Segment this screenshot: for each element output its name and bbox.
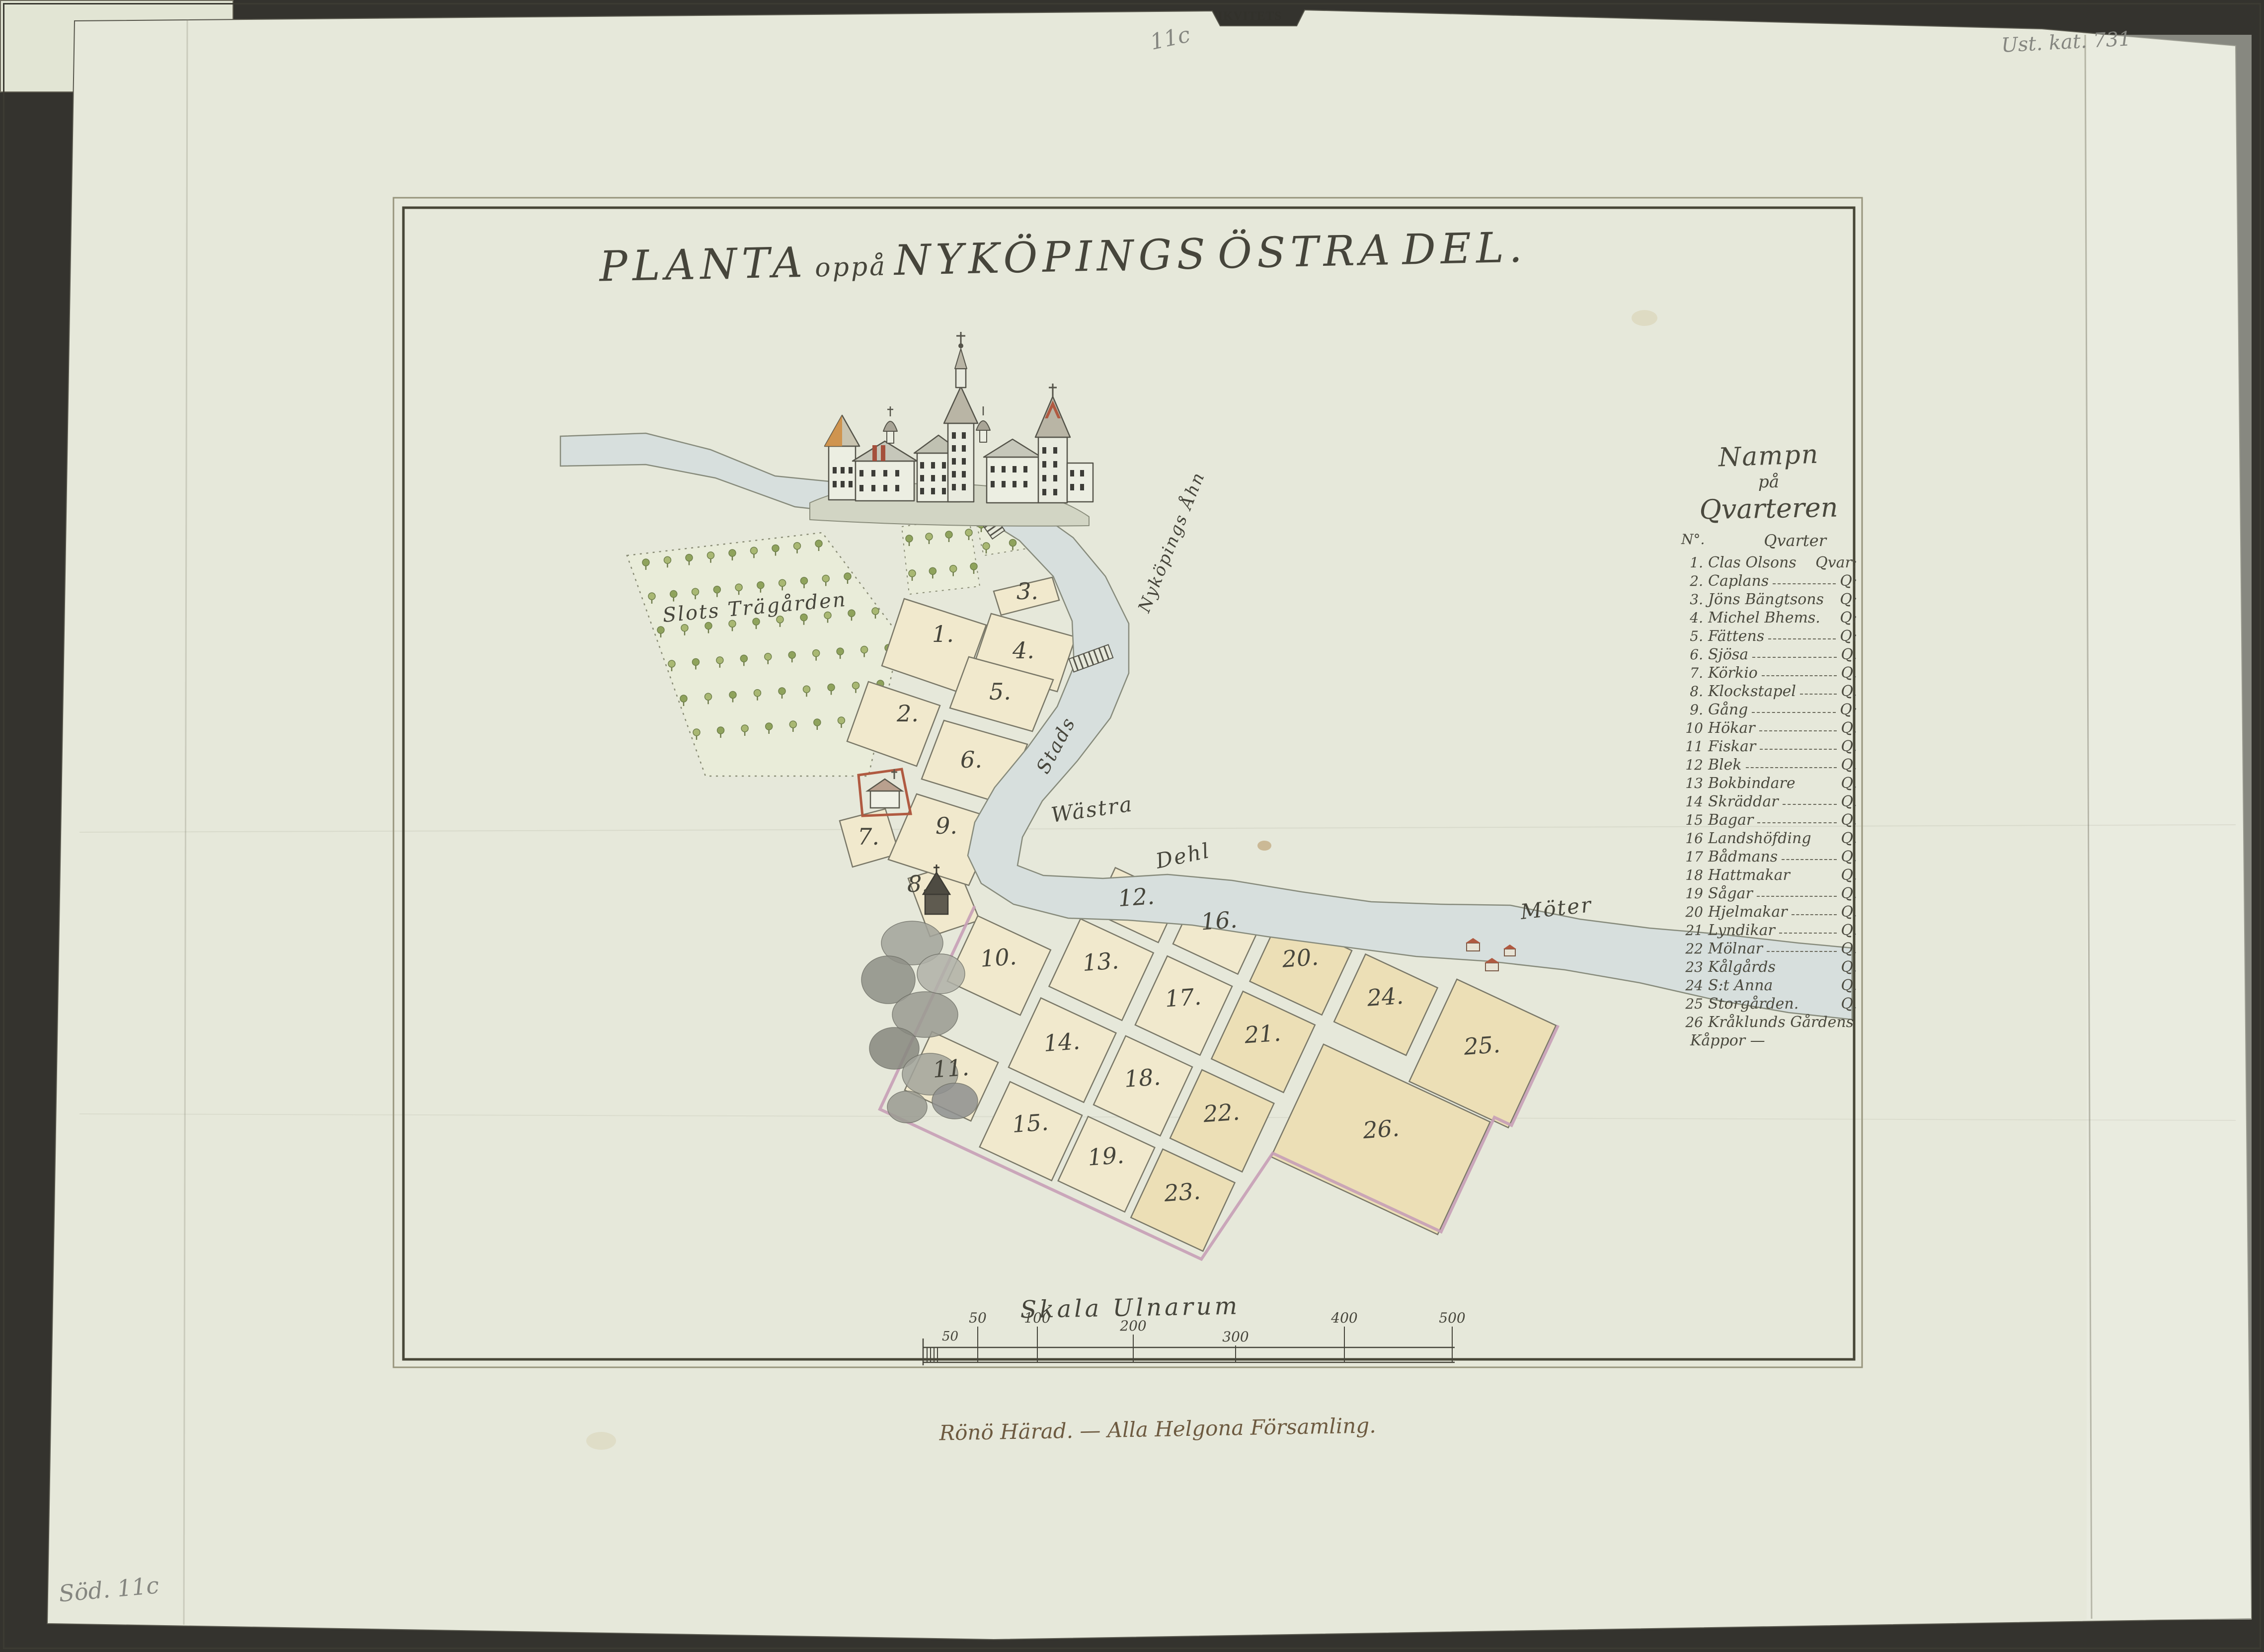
castle-window	[1070, 484, 1074, 490]
castle-window	[931, 462, 935, 469]
tree-crown	[765, 653, 772, 660]
legend-row-number: 14	[1680, 794, 1703, 809]
legend-rows: 1.Clas OlsonsQvar:2.CaplansQ:3.Jöns Bäng…	[1680, 552, 1857, 1030]
legend-row-name: Fiskar	[1708, 739, 1756, 754]
legend-row-q: Q:	[1840, 574, 1857, 589]
legend-leader	[1757, 896, 1837, 897]
castle-window	[895, 485, 899, 491]
castle-window	[1002, 466, 1006, 472]
tree-crown	[1010, 540, 1016, 547]
legend-row-name: Gång	[1708, 703, 1748, 717]
legend-row-name: S:t Anna	[1708, 978, 1773, 993]
legend-row: 25Storgården.Q.	[1680, 993, 1857, 1012]
tree-crown	[686, 554, 693, 561]
legend-row: 11FiskarQ.	[1680, 736, 1857, 754]
legend-row: 15BagarQ.	[1680, 809, 1857, 828]
block-number: 14.	[1043, 1027, 1081, 1057]
castle-window	[962, 458, 966, 465]
legend-row-name: Hökar	[1708, 721, 1755, 736]
legend-row: 2.CaplansQ:	[1680, 570, 1857, 589]
block-number: 15.	[1011, 1108, 1049, 1138]
castle-window	[833, 481, 837, 487]
legend-row-number: 6.	[1680, 647, 1703, 662]
scalebar-title: Skala Ulnarum	[1020, 1292, 1240, 1324]
legend-row-name: Bådmans	[1708, 850, 1778, 865]
legend-row-q: Q.	[1841, 997, 1857, 1012]
tree-crown	[729, 692, 736, 699]
castle-window	[920, 475, 924, 481]
stain	[1257, 841, 1271, 851]
tree-crown	[692, 658, 699, 665]
legend-row-name: Fättens	[1708, 629, 1764, 644]
castle-window	[1053, 475, 1057, 481]
castle-window	[942, 475, 946, 481]
block-number: 9.	[936, 812, 957, 839]
legend-row-name: Skräddar	[1708, 794, 1779, 809]
block-number: 25.	[1463, 1031, 1501, 1060]
legend-row-q: Q.	[1841, 886, 1857, 901]
castle-window	[962, 432, 966, 439]
tree-crown	[693, 729, 700, 736]
legend-row-number: 19	[1680, 886, 1703, 901]
block-number: 7.	[858, 823, 879, 850]
legend-row-q: Q.	[1841, 739, 1857, 754]
tree-crown	[861, 646, 868, 653]
legend-leader	[1792, 914, 1837, 915]
legend-row-q: Q.	[1841, 647, 1857, 662]
legend-row-q: Q.	[1841, 868, 1857, 883]
stain	[586, 1432, 616, 1450]
legend-row-number: 12	[1680, 758, 1703, 773]
legend-row-name: Lyndikar	[1708, 923, 1775, 938]
legend-leader	[1800, 694, 1837, 695]
legend-row-number: 13	[1680, 776, 1703, 791]
title-word: NYKÖPINGS	[894, 230, 1211, 285]
legend-row-q: Q.	[1841, 776, 1857, 791]
tree-crown	[848, 610, 855, 617]
title-word: DEL.	[1402, 223, 1527, 274]
legend-row-number: 10	[1680, 721, 1703, 736]
legend-row-q: Q.	[1841, 666, 1857, 681]
tree-crown	[777, 616, 783, 623]
block-number: 13.	[1082, 947, 1120, 976]
castle-window	[1042, 489, 1046, 495]
block-number: 18.	[1123, 1063, 1162, 1093]
tree-crown	[657, 627, 664, 633]
castle-window	[883, 470, 887, 476]
tree-crown	[681, 625, 688, 631]
legend-row-q: Q:	[1840, 629, 1857, 644]
legend-row-name: Jöns Bängtsons	[1708, 592, 1824, 607]
tree-crown	[788, 651, 795, 658]
castle-window	[1023, 481, 1027, 487]
scalebar-tick-label: 50	[969, 1310, 987, 1326]
castle-window	[962, 484, 966, 490]
legend-row-q: Q.	[1841, 794, 1857, 809]
scalebar-tick-label: 300	[1222, 1329, 1249, 1345]
castle-window	[952, 458, 956, 465]
legend-row-name: Sjösa	[1708, 647, 1748, 662]
legend-row-number: 8.	[1680, 684, 1703, 699]
block-number: 26.	[1361, 1114, 1400, 1144]
tree-crown	[751, 547, 758, 554]
tree-crown	[872, 608, 879, 615]
legend-row: 5.FättensQ:	[1680, 626, 1857, 644]
tree-crown	[757, 582, 764, 589]
block-number: 6.	[960, 746, 982, 773]
legend-row-number: 20	[1680, 905, 1703, 920]
tree-crown	[741, 725, 748, 732]
tree-crown	[803, 686, 810, 693]
castle-window	[1053, 489, 1057, 495]
block-number: 21.	[1243, 1020, 1282, 1049]
castle-window	[1013, 481, 1016, 487]
legend-row: 20HjelmakarQ.	[1680, 901, 1857, 920]
legend-leader	[1746, 767, 1837, 768]
legend-row: 19SågarQ.	[1680, 883, 1857, 901]
legend-row-number: 11	[1680, 739, 1703, 754]
legend-row: 10HökarQ.	[1680, 717, 1857, 736]
legend-row: 21LyndikarQ.	[1680, 920, 1857, 938]
tree-crown	[766, 723, 773, 730]
quarter-legend: Nampn på Qvarteren N°. Qvarter 1.Clas Ol…	[1680, 441, 1857, 1049]
rock	[932, 1083, 978, 1119]
castle-window	[1053, 447, 1057, 454]
legend-row-name: Kålgårds	[1708, 960, 1776, 975]
tree-crown	[822, 575, 829, 582]
castle-window	[871, 470, 875, 476]
castle-window	[849, 467, 853, 473]
scanned-map-sheet: 1.2.3.4.5.6.7.8.9.10.11.12.13.14.15.16.1…	[0, 0, 2264, 1652]
block-number: 10.	[979, 943, 1017, 972]
legend-row-number: 7.	[1680, 666, 1703, 681]
legend-row: 1.Clas OlsonsQvar:	[1680, 552, 1857, 570]
block-number: 19.	[1087, 1142, 1125, 1171]
legend-row-number: 18	[1680, 868, 1703, 883]
legend-row: 17BådmansQ.	[1680, 846, 1857, 865]
tree-crown	[670, 591, 677, 598]
legend-row-q: Q.	[1841, 960, 1857, 975]
legend-row-name: Bagar	[1708, 813, 1753, 828]
tree-crown	[705, 623, 712, 629]
title-word: ÖSTRA	[1217, 226, 1395, 278]
castle-window	[883, 485, 887, 491]
legend-row-name: Mölnar	[1708, 942, 1763, 956]
legend-row-number: 5.	[1680, 629, 1703, 644]
tree-crown	[729, 620, 736, 627]
legend-row-q: Q.	[1841, 684, 1857, 699]
legend-row-number: 21	[1680, 923, 1703, 938]
legend-heading: Qvarteren	[1680, 491, 1857, 526]
legend-row: 23KålgårdsQ.	[1680, 956, 1857, 975]
tree-crown	[772, 545, 779, 552]
tree-crown	[965, 529, 972, 536]
block-number: 11.	[932, 1054, 970, 1083]
castle-window	[952, 445, 956, 452]
legend-row-q: Q.	[1841, 905, 1857, 920]
castle-window	[952, 432, 956, 439]
tree-crown	[735, 584, 742, 591]
tree-crown	[779, 579, 786, 586]
castle-window	[833, 467, 837, 473]
castle-window	[920, 462, 924, 469]
castle-window	[1080, 470, 1084, 476]
tree-crown	[800, 577, 807, 584]
title-word: PLANTA	[599, 238, 808, 291]
stain	[1632, 310, 1657, 326]
legend-leader	[1752, 712, 1836, 713]
castle-window	[942, 462, 946, 469]
block-number: 5.	[989, 678, 1011, 705]
legend-leader	[1757, 822, 1837, 823]
legend-leader	[1768, 638, 1836, 639]
legend-footer: Kåppor —	[1690, 1032, 1857, 1049]
tree-crown	[680, 695, 687, 702]
castle-window	[931, 475, 935, 481]
rock	[887, 1091, 927, 1123]
castle-window	[1013, 466, 1016, 472]
castle-window	[895, 470, 899, 476]
castle-window	[1080, 484, 1084, 490]
castle-window	[1042, 447, 1046, 454]
tree-crown	[707, 552, 714, 559]
legend-row: 16LandshöfdingQ.	[1680, 828, 1857, 846]
legend-row-name: Kråklunds Gårdens	[1708, 1015, 1854, 1030]
block-number: 2.	[896, 700, 919, 727]
castle-window	[841, 467, 845, 473]
legend-row-number: 15	[1680, 813, 1703, 828]
tree-crown	[815, 540, 822, 547]
legend-row-number: 9.	[1680, 703, 1703, 717]
legend-row: 8.KlockstapelQ.	[1680, 681, 1857, 699]
castle-window	[859, 485, 863, 491]
block-number: 4.	[1012, 637, 1034, 664]
legend-row-name: Michel Bhems.	[1708, 611, 1820, 626]
tree-crown	[668, 660, 675, 667]
title-word: oppå	[815, 251, 887, 283]
block-number: 8.	[907, 870, 929, 897]
legend-col-qvarter: Qvarter	[1764, 531, 1826, 550]
block-number: 3.	[1016, 578, 1038, 605]
legend-row: 26Kråklunds Gårdens	[1680, 1012, 1857, 1030]
legend-row-q: Q.	[1841, 758, 1857, 773]
legend-row: 4.Michel Bhems.Q:	[1680, 607, 1857, 626]
castle-window	[1023, 466, 1027, 472]
legend-row-name: Hattmakar	[1708, 868, 1790, 883]
legend-heading: Nampn	[1680, 438, 1858, 474]
legend-leader	[1762, 675, 1837, 676]
legend-col-no: N°.	[1681, 531, 1705, 550]
tree-crown	[794, 543, 801, 550]
castle-window	[1070, 470, 1074, 476]
legend-row-number: 22	[1680, 942, 1703, 956]
tree-crown	[824, 612, 831, 619]
castle-window	[991, 481, 995, 487]
tree-crown	[642, 559, 649, 566]
castle-window	[931, 488, 935, 494]
legend-row-q: Q.	[1841, 813, 1857, 828]
legend-row-name: Sågar	[1708, 886, 1753, 901]
tree-crown	[754, 690, 761, 697]
scalebar-start-label: 50	[942, 1329, 958, 1344]
legend-row-q: Q.	[1841, 831, 1857, 846]
rock	[917, 954, 965, 994]
legend-heading: på	[1680, 472, 1857, 492]
legend-row-q: Qvar:	[1815, 555, 1857, 570]
castle-window	[849, 481, 853, 487]
small-garden	[902, 517, 980, 594]
castle-window	[1002, 481, 1006, 487]
block-number: 24.	[1366, 982, 1405, 1012]
castle-window	[1053, 461, 1057, 468]
legend-row: 12BlekQ.	[1680, 754, 1857, 773]
tree-crown	[853, 682, 859, 689]
scalebar-tick-label: 400	[1330, 1310, 1357, 1326]
tree-crown	[692, 588, 699, 595]
tree-crown	[926, 533, 933, 540]
legend-leader	[1779, 933, 1837, 934]
legend-row-number: 4.	[1680, 611, 1703, 626]
tree-crown	[814, 719, 821, 726]
legend-row-number: 1.	[1680, 555, 1703, 570]
legend-row-number: 16	[1680, 831, 1703, 846]
tree-crown	[909, 570, 916, 577]
castle-window	[859, 470, 863, 476]
block-number: 1.	[932, 621, 954, 647]
tree-crown	[828, 684, 835, 691]
block-number: 17.	[1164, 983, 1202, 1013]
castle-window	[1042, 475, 1046, 481]
legend-row: 18HattmakarQ.	[1680, 865, 1857, 883]
tree-crown	[664, 556, 671, 563]
tree-crown	[716, 657, 723, 664]
tree-crown	[950, 565, 957, 572]
castle-window	[942, 488, 946, 494]
castle-window	[1042, 461, 1046, 468]
legend-row-q: Q.	[1841, 850, 1857, 865]
legend-row: 9.GångQ:	[1680, 699, 1857, 717]
legend-leader	[1773, 583, 1836, 584]
legend-row: 14SkräddarQ.	[1680, 791, 1857, 809]
legend-leader	[1782, 859, 1837, 860]
tree-crown	[838, 717, 845, 724]
legend-row-q: Q.	[1841, 721, 1857, 736]
tree-crown	[970, 563, 977, 570]
tree-crown	[705, 693, 712, 700]
tree-crown	[740, 655, 747, 662]
castle-window	[920, 488, 924, 494]
tree-crown	[753, 618, 760, 625]
legend-row-name: Caplans	[1708, 574, 1769, 589]
legend-row-number: 25	[1680, 997, 1703, 1012]
legend-leader	[1783, 804, 1837, 805]
block-number: 22.	[1202, 1098, 1241, 1127]
castle-window	[991, 466, 995, 472]
legend-row-q: Q:	[1840, 703, 1857, 717]
legend-leader	[1752, 657, 1837, 658]
block-number: 23.	[1163, 1178, 1201, 1207]
castle-window	[841, 481, 845, 487]
tree-crown	[929, 567, 936, 574]
castle-window	[962, 471, 966, 477]
tree-crown	[945, 531, 952, 538]
block-number: 16.	[1200, 906, 1238, 936]
tree-crown	[717, 727, 724, 734]
legend-row-name: Bokbindare	[1708, 776, 1796, 791]
legend-row: 7.KörkioQ.	[1680, 662, 1857, 681]
tree-crown	[983, 543, 990, 550]
castle-window	[952, 484, 956, 490]
tree-crown	[648, 593, 655, 600]
legend-row-name: Körkio	[1708, 666, 1758, 681]
scalebar-tick-label: 500	[1439, 1310, 1465, 1326]
tree-crown	[837, 648, 844, 655]
legend-leader	[1767, 951, 1837, 952]
legend-row-q: Q.	[1841, 978, 1857, 993]
tree-crown	[844, 573, 851, 580]
tree-crown	[729, 550, 736, 556]
castle-window	[962, 445, 966, 452]
legend-leader	[1760, 749, 1837, 750]
legend-row: 6.SjösaQ.	[1680, 644, 1857, 662]
legend-row: 3.Jöns BängtsonsQ:	[1680, 589, 1857, 607]
legend-row-number: 17	[1680, 850, 1703, 865]
paper-fold-flap	[2087, 35, 2252, 1620]
legend-row-name: Clas Olsons	[1708, 555, 1796, 570]
legend-row: 13BokbindareQ.	[1680, 773, 1857, 791]
legend-row-q: Q:	[1840, 592, 1857, 607]
tree-crown	[779, 688, 785, 695]
legend-leader	[1759, 730, 1837, 731]
legend-row-name: Blek	[1708, 758, 1742, 773]
legend-row-number: 3.	[1680, 592, 1703, 607]
tree-crown	[800, 614, 807, 621]
block-number: 20.	[1281, 944, 1320, 973]
block-number: 12.	[1117, 882, 1156, 912]
legend-row-name: Landshöfding	[1708, 831, 1811, 846]
legend-row: 22MölnarQ.	[1680, 938, 1857, 956]
legend-row-number: 24	[1680, 978, 1703, 993]
castle-window	[952, 471, 956, 477]
tree-crown	[906, 535, 913, 542]
legend-row-name: Klockstapel	[1708, 684, 1796, 699]
legend-row-number: 23	[1680, 960, 1703, 975]
legend-row-q: Q.	[1841, 942, 1857, 956]
castle-window	[871, 485, 875, 491]
legend-row-q: Q.	[1841, 923, 1857, 938]
legend-row-number: 2.	[1680, 574, 1703, 589]
tree-crown	[789, 721, 796, 728]
legend-row-q: Q:	[1840, 611, 1857, 626]
legend-row-name: Hjelmakar	[1708, 905, 1788, 920]
tree-crown	[813, 650, 820, 657]
legend-row-number: 26	[1680, 1015, 1703, 1030]
legend-row: 24S:t AnnaQ.	[1680, 975, 1857, 993]
legend-row-name: Storgården.	[1708, 997, 1798, 1012]
tree-crown	[713, 586, 720, 593]
legend-column-headers: N°. Qvarter	[1681, 531, 1856, 550]
